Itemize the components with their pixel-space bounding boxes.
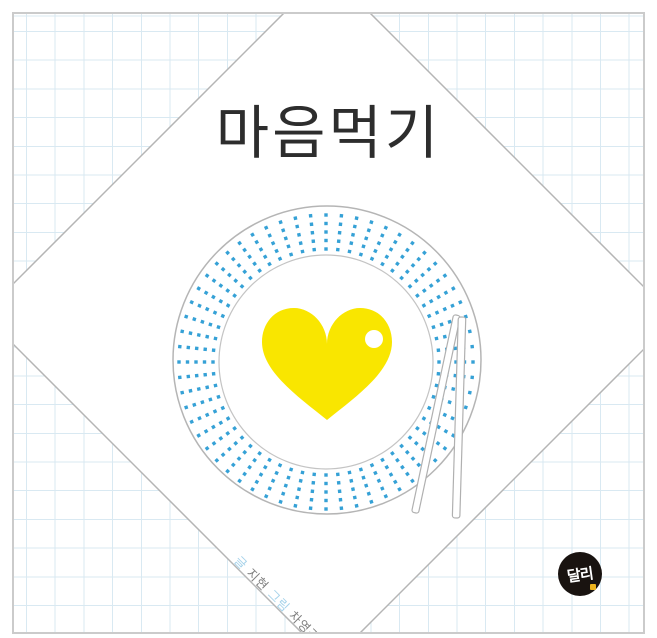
- logo-accent-dot: [590, 584, 596, 590]
- graph-paper-page: 마음먹기 글 지현 그림 차영경 달리: [12, 12, 645, 634]
- publisher-logo: 달리: [558, 552, 602, 596]
- book-title: 마음먹기: [14, 102, 643, 166]
- egg-highlight: [365, 330, 383, 348]
- publisher-logo-text: 달리: [566, 562, 594, 586]
- book-cover: { "cover": { "title": "마음먹기", "credits":…: [0, 0, 657, 638]
